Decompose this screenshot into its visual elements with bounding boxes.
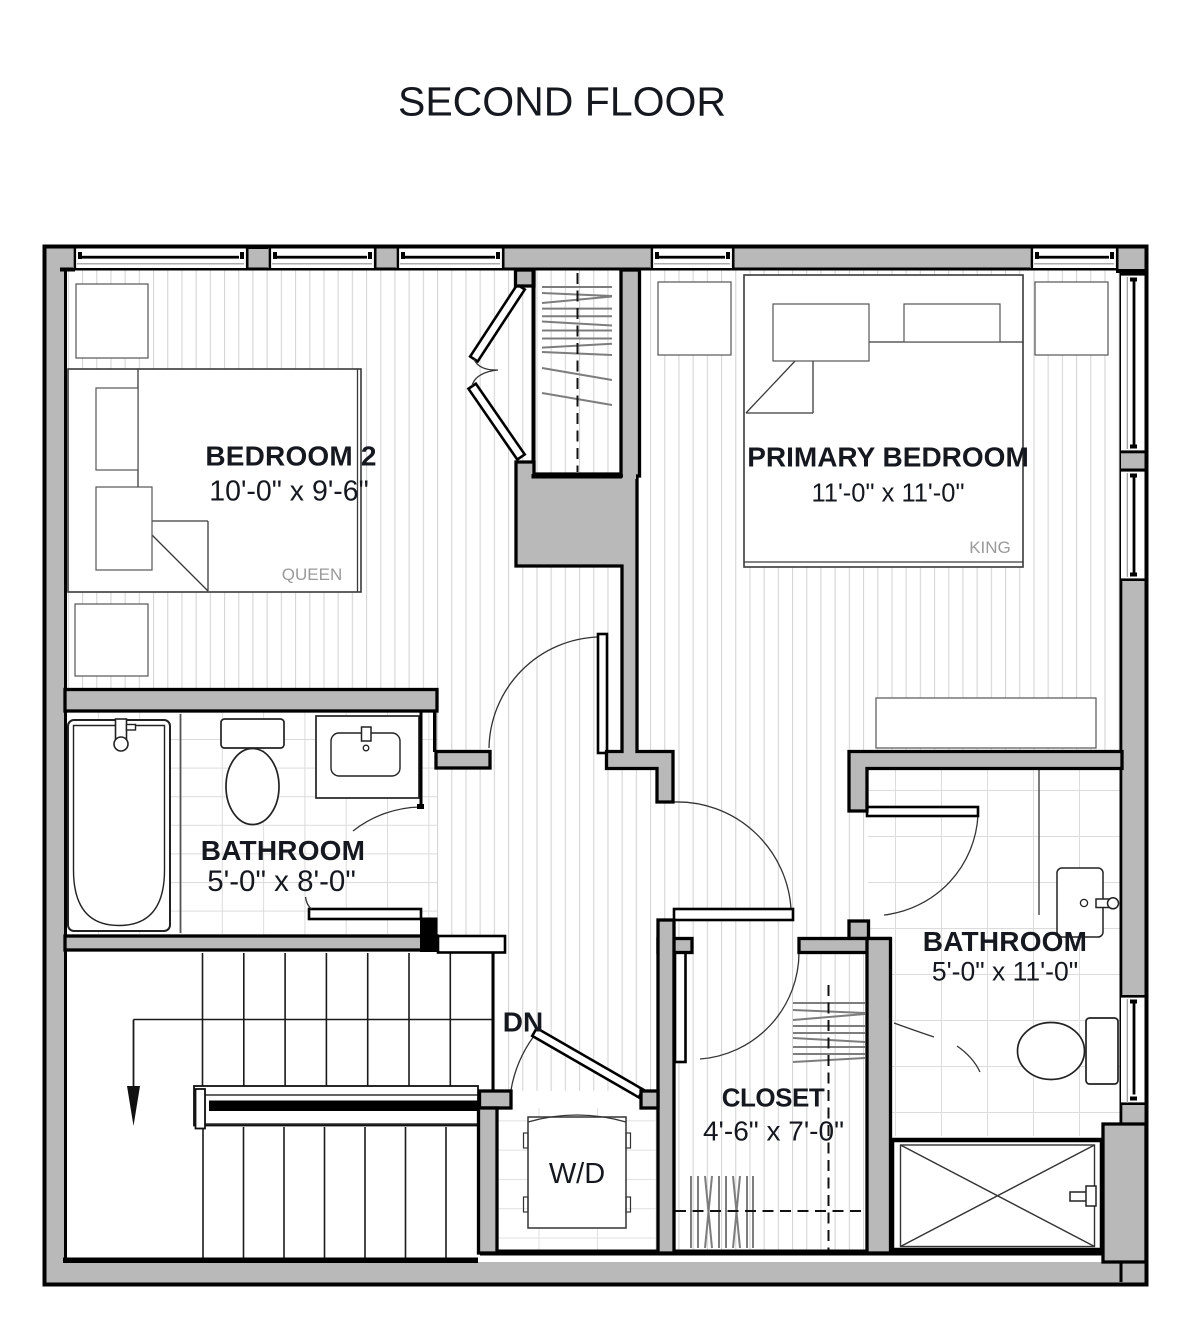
svg-text:5'-0" x 8'-0": 5'-0" x 8'-0" bbox=[207, 865, 356, 898]
svg-text:BATHROOM: BATHROOM bbox=[923, 926, 1087, 957]
svg-text:4'-6" x 7'-0": 4'-6" x 7'-0" bbox=[703, 1116, 844, 1147]
svg-text:10'-0" x 9'-6": 10'-0" x 9'-6" bbox=[209, 476, 368, 508]
svg-text:BEDROOM 2: BEDROOM 2 bbox=[205, 440, 376, 471]
svg-text:W/D: W/D bbox=[549, 1158, 605, 1190]
svg-text:11'-0" x 11'-0": 11'-0" x 11'-0" bbox=[811, 480, 964, 508]
svg-text:DN: DN bbox=[503, 1007, 543, 1038]
svg-text:SECOND FLOOR: SECOND FLOOR bbox=[398, 79, 726, 125]
svg-text:KING: KING bbox=[969, 538, 1011, 557]
svg-text:QUEEN: QUEEN bbox=[282, 565, 342, 584]
svg-text:BATHROOM: BATHROOM bbox=[201, 835, 365, 866]
svg-text:CLOSET: CLOSET bbox=[722, 1083, 825, 1113]
svg-text:PRIMARY BEDROOM: PRIMARY BEDROOM bbox=[747, 442, 1029, 473]
svg-text:5'-0" x 11'-0": 5'-0" x 11'-0" bbox=[932, 957, 1078, 987]
